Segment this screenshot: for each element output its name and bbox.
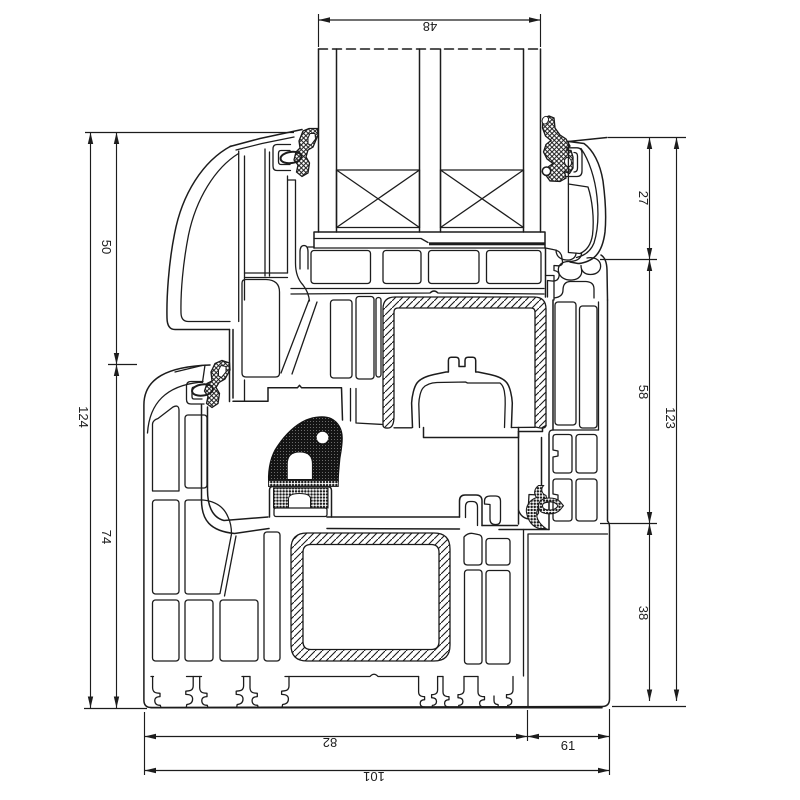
svg-text:101: 101 bbox=[363, 769, 385, 784]
svg-text:124: 124 bbox=[76, 406, 91, 428]
svg-text:74: 74 bbox=[99, 530, 114, 544]
svg-text:48: 48 bbox=[423, 19, 437, 34]
svg-text:61: 61 bbox=[561, 738, 575, 753]
svg-text:58: 58 bbox=[636, 385, 651, 399]
svg-text:27: 27 bbox=[636, 191, 651, 205]
svg-text:50: 50 bbox=[99, 240, 114, 254]
svg-text:123: 123 bbox=[663, 407, 678, 429]
svg-text:82: 82 bbox=[323, 735, 337, 750]
svg-text:38: 38 bbox=[636, 606, 651, 620]
